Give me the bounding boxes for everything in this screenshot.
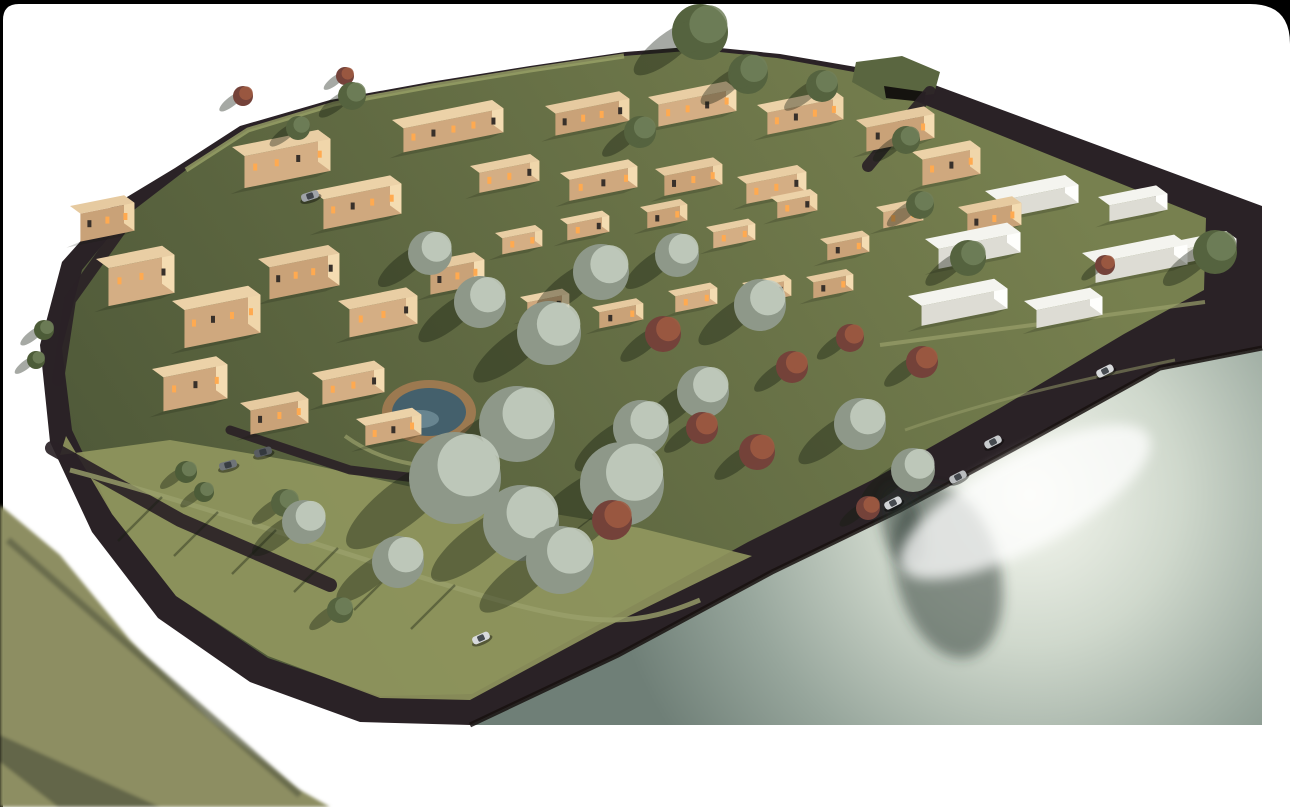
tree-canopy-highlight: [503, 388, 555, 440]
window: [370, 199, 374, 206]
window: [992, 215, 996, 222]
window: [836, 247, 840, 253]
window: [686, 105, 690, 112]
tree-canopy-highlight: [905, 449, 935, 479]
tree-canopy-highlight: [239, 86, 253, 100]
tree-canopy-highlight: [604, 501, 631, 528]
window: [372, 377, 376, 384]
window: [794, 114, 798, 121]
tree-canopy-highlight: [182, 461, 197, 476]
window: [581, 115, 585, 122]
window: [215, 377, 219, 384]
window: [672, 180, 676, 187]
window: [391, 426, 395, 433]
window: [1010, 211, 1014, 218]
window: [230, 312, 234, 319]
window: [711, 172, 715, 179]
tree-canopy-highlight: [335, 598, 353, 616]
tree-canopy-highlight: [693, 367, 728, 402]
window: [949, 162, 953, 169]
window: [722, 235, 726, 241]
window: [455, 272, 459, 279]
tree-canopy-highlight: [845, 325, 864, 344]
window: [258, 416, 262, 423]
window: [608, 315, 612, 321]
tree-canopy-highlight: [1207, 231, 1237, 261]
window: [87, 220, 91, 227]
window: [579, 184, 583, 191]
window: [297, 408, 301, 415]
tree-canopy-highlight: [689, 5, 727, 43]
window: [930, 165, 934, 172]
window: [684, 299, 688, 305]
window: [775, 117, 779, 124]
window: [725, 98, 729, 105]
window: [410, 423, 414, 430]
window: [249, 308, 253, 315]
site-rendering-svg: [0, 0, 1290, 807]
tree-canopy-highlight: [669, 234, 699, 264]
tree-canopy-highlight: [630, 401, 668, 439]
tree-canopy-highlight: [634, 117, 656, 139]
window: [351, 382, 355, 389]
window: [969, 158, 973, 165]
window: [675, 211, 679, 217]
window: [754, 188, 758, 195]
window: [600, 111, 604, 118]
window: [331, 206, 335, 213]
window: [139, 273, 143, 280]
tree-canopy-highlight: [33, 351, 45, 363]
window: [821, 285, 825, 291]
tree-canopy-highlight: [422, 232, 452, 262]
window: [832, 106, 836, 113]
tree-canopy-highlight: [901, 127, 920, 146]
window: [785, 205, 789, 211]
tree-canopy-highlight: [656, 317, 680, 341]
window: [471, 122, 475, 129]
tree-canopy-highlight: [915, 192, 934, 211]
tree-canopy-highlight: [200, 482, 214, 496]
window: [841, 281, 845, 287]
window: [530, 237, 534, 243]
window: [921, 123, 925, 130]
window: [351, 203, 355, 210]
window: [576, 227, 580, 233]
tree-canopy-highlight: [606, 444, 663, 501]
tree-canopy-highlight: [750, 435, 774, 459]
window: [172, 385, 176, 392]
window: [563, 118, 567, 125]
window: [624, 175, 628, 182]
window: [117, 277, 121, 284]
tree-canopy-highlight: [342, 67, 354, 79]
window: [193, 381, 197, 388]
window: [381, 311, 385, 318]
tree-canopy-highlight: [590, 245, 628, 283]
window: [510, 241, 514, 247]
tree-canopy-highlight: [750, 280, 785, 315]
window: [974, 219, 978, 226]
tree-canopy-highlight: [916, 347, 938, 369]
window: [601, 179, 605, 186]
window: [294, 272, 298, 279]
window: [876, 133, 880, 140]
tree-canopy-highlight: [537, 302, 581, 346]
window: [373, 430, 377, 437]
window: [275, 159, 279, 166]
window: [451, 126, 455, 133]
window: [794, 180, 798, 187]
window: [211, 316, 215, 323]
window: [318, 151, 322, 158]
window: [311, 268, 315, 275]
window: [192, 320, 196, 327]
window: [630, 311, 634, 317]
window: [666, 109, 670, 116]
tree-canopy-highlight: [347, 83, 366, 102]
window: [437, 276, 441, 283]
architectural-rendering-viewport: [0, 0, 1290, 807]
tree-canopy-highlight: [786, 352, 808, 374]
window: [527, 169, 531, 176]
tree-canopy-highlight: [470, 277, 505, 312]
window: [253, 164, 257, 171]
tree-canopy-highlight: [1101, 255, 1115, 269]
tree-canopy-highlight: [40, 320, 54, 334]
tree-canopy-highlight: [388, 537, 423, 572]
window: [805, 201, 809, 207]
window: [691, 176, 695, 183]
window: [705, 295, 709, 301]
tree-canopy-highlight: [438, 434, 501, 497]
tree-canopy-highlight: [850, 399, 885, 434]
window: [618, 107, 622, 114]
tree-canopy-highlight: [296, 501, 326, 531]
window: [473, 269, 477, 276]
window: [277, 412, 281, 419]
window: [161, 269, 165, 276]
tree-canopy-highlight: [863, 496, 879, 512]
window: [123, 213, 127, 220]
tree-canopy-highlight: [961, 241, 985, 265]
tree-canopy-highlight: [293, 116, 309, 132]
window: [105, 217, 109, 224]
window: [857, 243, 861, 249]
window: [390, 195, 394, 202]
window: [296, 155, 300, 162]
tree-canopy-highlight: [547, 527, 593, 573]
window: [431, 130, 435, 137]
window: [329, 265, 333, 272]
window: [597, 223, 601, 229]
window: [655, 215, 659, 221]
window: [359, 315, 363, 322]
window: [491, 118, 495, 125]
window: [331, 386, 335, 393]
window: [487, 177, 491, 184]
tree-canopy-highlight: [816, 71, 838, 93]
tree-canopy-highlight: [696, 413, 718, 435]
window: [813, 110, 817, 117]
window: [743, 231, 747, 237]
window: [411, 134, 415, 141]
window: [404, 306, 408, 313]
tree-canopy-highlight: [740, 55, 767, 82]
window: [276, 275, 280, 282]
window: [507, 173, 511, 180]
window: [774, 184, 778, 191]
